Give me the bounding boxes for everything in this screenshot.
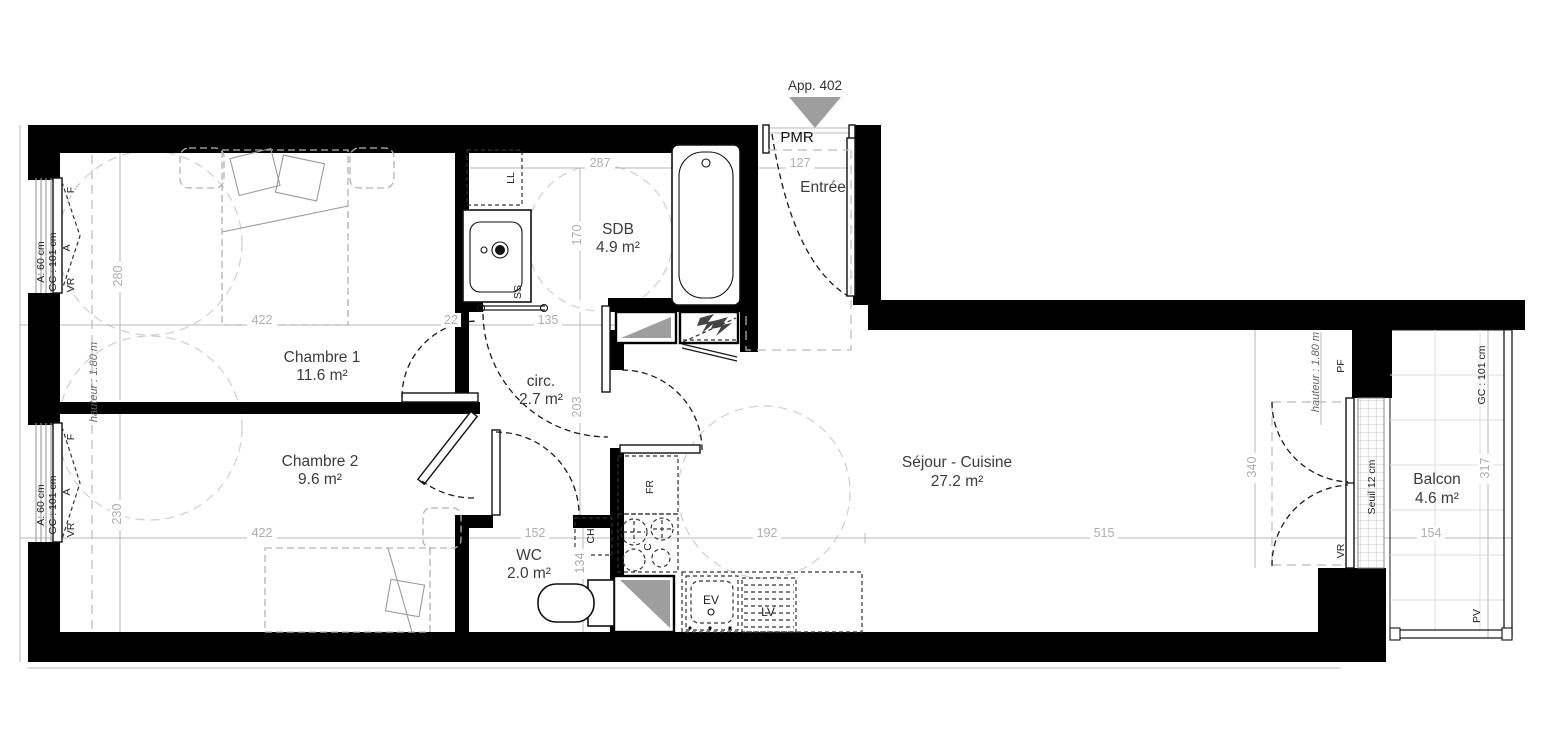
dim-422b: 422 — [252, 526, 273, 540]
door-circ-sejour — [620, 370, 702, 453]
room-sejour-area: 27.2 m² — [931, 473, 984, 490]
dim-134: 134 — [573, 553, 587, 574]
dim-280: 280 — [111, 266, 125, 287]
room-balcon-area: 4.6 m² — [1415, 490, 1459, 507]
cooktop — [618, 514, 678, 572]
room-wc-name: WC — [516, 547, 542, 564]
window1-gc101-label: GC : 101 cm — [47, 232, 59, 291]
window1-vr-label: VR — [65, 277, 77, 292]
dim-135: 135 — [538, 313, 559, 327]
room-chambre2-area: 9.6 m² — [298, 471, 342, 488]
kitchen-sink-drain-icon — [708, 609, 714, 615]
pmr-tag: PMR — [780, 129, 814, 146]
entrance-door — [763, 125, 855, 296]
balcony-vr-label: VR — [1335, 543, 1347, 558]
bathtub — [672, 145, 740, 305]
exterior-walls — [28, 125, 1525, 662]
kitchen-sink-label: EV — [703, 593, 719, 607]
dim-127: 127 — [790, 156, 811, 170]
dim-230: 230 — [110, 504, 124, 525]
fridge-label: FR — [644, 480, 656, 494]
window1-a-label: A — [61, 244, 73, 251]
hauteur-left-label: hauteur : 1.80 m — [88, 342, 100, 422]
electrical-panel — [680, 312, 738, 361]
balcony-gc101-label: GC : 101 cm — [1476, 345, 1488, 404]
apartment-label: App. 402 — [788, 78, 842, 93]
room-entree-name: Entrée — [800, 179, 846, 196]
floor-plan-page: App. 402 287 127 170 422 22 135 280 230 … — [0, 0, 1547, 741]
room-circ-area: 2.7 m² — [519, 391, 563, 408]
dishwasher-label: LV — [761, 605, 775, 619]
dim-515: 515 — [1094, 526, 1115, 540]
threshold-label: Seuil 12 cm — [1366, 459, 1378, 514]
room-balcon-name: Balcon — [1413, 471, 1460, 488]
room-circ-name: circ. — [527, 373, 555, 390]
toilet — [538, 580, 614, 626]
balcony-pf-label: PF — [1335, 359, 1347, 372]
window2-a60-label: A: 60 cm — [35, 484, 47, 526]
water-heater-label: CH — [585, 528, 597, 543]
room-sdb-area: 4.9 m² — [596, 239, 640, 256]
dim-340: 340 — [1245, 457, 1259, 478]
dim-317: 317 — [1478, 458, 1492, 479]
balcony-pv-label: PV — [1471, 609, 1483, 623]
window2-gc101-label: GC : 101 cm — [47, 475, 59, 534]
window2-f-label: F — [65, 434, 77, 440]
door-chambre2 — [418, 412, 477, 498]
room-chambre1-name: Chambre 1 — [284, 349, 361, 366]
dim-192: 192 — [757, 526, 778, 540]
washing-machine-label: LL — [505, 172, 517, 184]
apartment-pointer-icon — [789, 97, 841, 128]
technical-shaft-sdb — [616, 312, 676, 343]
room-chambre2-name: Chambre 2 — [282, 453, 359, 470]
dim-287: 287 — [590, 156, 611, 170]
room-wc-area: 2.0 m² — [507, 565, 551, 582]
dim-170: 170 — [570, 225, 584, 246]
floor-plan-drawing: App. 402 287 127 170 422 22 135 280 230 … — [0, 0, 1547, 741]
door-wc — [492, 430, 579, 515]
window1-a60-label: A: 60 cm — [35, 241, 47, 283]
dim-422a: 422 — [252, 313, 273, 327]
room-chambre1-area: 11.6 m² — [296, 367, 347, 384]
cooktop-label: C — [642, 543, 654, 551]
towel-radiator — [478, 305, 548, 312]
towel-radiator-label: SS — [512, 285, 524, 299]
window2-a-label: A — [61, 488, 73, 495]
dim-152: 152 — [525, 526, 546, 540]
room-sdb-name: SDB — [602, 221, 634, 238]
hauteur-right-label: hauteur : 1.80 m — [1310, 332, 1322, 412]
room-sejour-name: Séjour - Cuisine — [902, 454, 1012, 471]
window2-vr-label: VR — [65, 522, 77, 537]
dim-22: 22 — [444, 313, 458, 327]
apartment-marker: App. 402 — [788, 78, 842, 128]
interior-walls — [60, 125, 758, 635]
technical-shaft-wc — [614, 576, 674, 632]
window1-f-label: F — [65, 187, 77, 193]
small-annotations: A: 60 cm GC : 101 cm F A VR A: 60 cm GC … — [35, 172, 1488, 623]
dim-154: 154 — [1421, 526, 1442, 540]
dim-203: 203 — [570, 397, 584, 418]
